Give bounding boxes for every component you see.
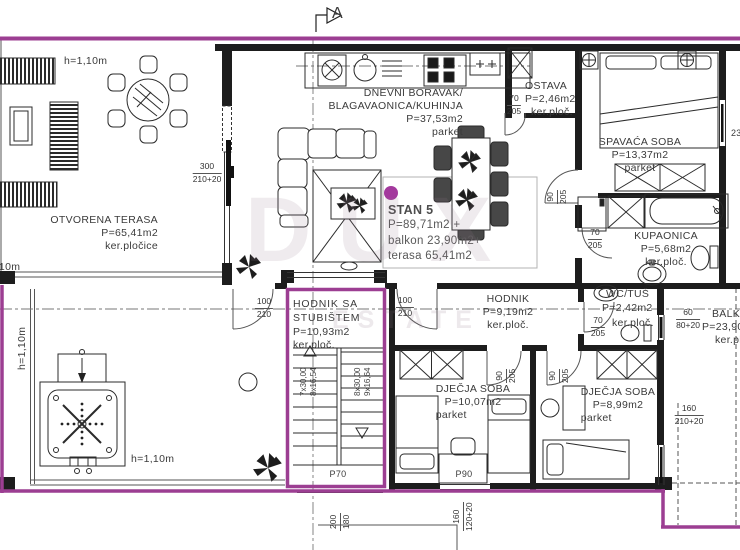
- unit-title: STAN 5: [388, 202, 481, 218]
- tv: [226, 140, 234, 206]
- room-floor: parket: [581, 412, 656, 425]
- jacuzzi: [40, 350, 125, 474]
- hallway-label: HODNIK P=9,19m2 ker.ploč.: [483, 293, 534, 332]
- bedroom-window-dim: 230: [731, 127, 740, 140]
- room-name: SPAVAĆA SOBA: [599, 136, 681, 149]
- room-area: P=8,99m2: [581, 399, 656, 412]
- stairhall-bottom-dim: 200 180: [329, 513, 351, 531]
- ostava-label: OSTAVA P=2,46m2 ker.ploč.: [525, 80, 576, 119]
- terrace-top-label: OTVORENA TERASA P=65,41m2 ker.pločice: [30, 214, 158, 253]
- room-name: HODNIK: [483, 293, 534, 306]
- floor-plan-drawing: [0, 0, 740, 550]
- unit-area: P=89,71m2 +: [388, 218, 481, 234]
- bedroom-door-dim: 90 205: [546, 190, 568, 204]
- ostava-door-dim: 70 205: [507, 94, 521, 116]
- room-floor: ker.ploč.: [634, 256, 698, 269]
- terrace-railing-label: h=1,10m: [64, 55, 107, 68]
- room-floor: ker.ploč.: [483, 319, 534, 332]
- room-floor: parket: [599, 162, 681, 175]
- kitchen-counter: [305, 48, 532, 88]
- room-name: BLAGAVAONICA/KUHINJA: [298, 100, 463, 113]
- kids1-label: DJEČJA SOBA P=10,07m2 parket: [436, 383, 511, 422]
- stairhall-name1: HODNIK SA: [293, 298, 358, 311]
- stairhall-door-dim: 100 210: [255, 297, 273, 319]
- bedroom-label: SPAVAĆA SOBA P=13,37m2 parket: [599, 136, 681, 175]
- unit-balcony-area: balkon 23,90m2+: [388, 234, 481, 250]
- kids2-window-dim: 160 210+20: [675, 404, 704, 426]
- terrace-railing-bottom: h=1,10m: [131, 453, 174, 466]
- terrace-railing-left: h=1,10m: [16, 327, 29, 370]
- balcony-name: BALKON: [712, 308, 740, 321]
- room-name: DNEVNI BORAVAK/: [298, 87, 463, 100]
- room-area: P=10,07m2: [436, 396, 511, 409]
- balcony-area: P=23,90m2: [702, 321, 740, 334]
- unit-terrace-area: terasa 65,41m2: [388, 249, 481, 265]
- hallway-door-dim: 100 210: [396, 296, 414, 318]
- plant: [253, 453, 282, 482]
- wc-floor: ker.ploč.: [612, 317, 654, 330]
- wc-name: WC/TUŠ: [606, 288, 649, 301]
- stairhall-area: P=10,93m2: [293, 326, 350, 339]
- stairhall-name2: STUBIŠTEM: [293, 312, 360, 325]
- section-marker-label: A: [332, 7, 343, 20]
- room-name: OSTAVA: [525, 80, 576, 93]
- room-name: KUPAONICA: [634, 230, 698, 243]
- floor-plan: A h=1,10m OTVORENA TERASA P=65,41m2 ker.…: [0, 0, 740, 550]
- room-area: P=5,68m2: [634, 243, 698, 256]
- terrace-top-furniture: [0, 56, 187, 207]
- room-area: P=9,19m2: [483, 306, 534, 319]
- bathroom-door-dim: 70 205: [588, 228, 602, 250]
- wc-area: P=2,42m2: [602, 302, 653, 315]
- stairhall-floor: ker.ploč.: [293, 339, 335, 352]
- balcony-floor: ker.ploč.: [715, 334, 740, 347]
- kids1-window-tag: P90: [456, 468, 473, 481]
- room-floor: parket: [436, 409, 511, 422]
- wc-door-dim: 70 205: [591, 316, 605, 338]
- room-floor: parket: [298, 126, 463, 139]
- living-door-dim: 300 210+20: [193, 162, 222, 184]
- living-room-label: DNEVNI BORAVAK/ BLAGAVAONICA/KUHINJA P=3…: [298, 87, 463, 139]
- coffee-table: [313, 170, 381, 270]
- room-name: DJEČJA SOBA: [581, 386, 656, 399]
- room-area: P=37,53m2: [298, 113, 463, 126]
- stan5-dot: [384, 186, 398, 200]
- kids1-window-dim: 160 120+20: [452, 502, 474, 531]
- balcony-window-dim: 60 80+20: [676, 308, 700, 330]
- kids2-label: DJEČJA SOBA P=8,99m2 parket: [581, 386, 656, 425]
- terrace-light: [239, 373, 257, 391]
- kids2-door-dim: 90 205: [548, 369, 570, 383]
- kids1-door-dim: 90 205: [495, 369, 517, 383]
- stairs: [293, 346, 383, 465]
- room-name: DJEČJA SOBA: [436, 383, 511, 396]
- room-area: P=2,46m2: [525, 93, 576, 106]
- terrace-railing-top: h=1,10m: [0, 261, 20, 274]
- room-name: OTVORENA TERASA: [30, 214, 158, 227]
- stairs-left-label: 7x30,00 8x16,54: [299, 368, 318, 396]
- stairhall-window-tag: P70: [330, 468, 347, 481]
- room-floor: ker.ploč.: [525, 106, 576, 119]
- bathroom-label: KUPAONICA P=5,68m2 ker.ploč.: [634, 230, 698, 269]
- room-floor: ker.pločice: [30, 240, 158, 253]
- room-area: P=65,41m2: [30, 227, 158, 240]
- stan5-label: STAN 5 P=89,71m2 + balkon 23,90m2+ teras…: [388, 202, 481, 265]
- plant: [236, 254, 261, 279]
- room-area: P=13,37m2: [599, 149, 681, 162]
- stairs-right-label: 8x30,00 9x16,64: [353, 368, 372, 396]
